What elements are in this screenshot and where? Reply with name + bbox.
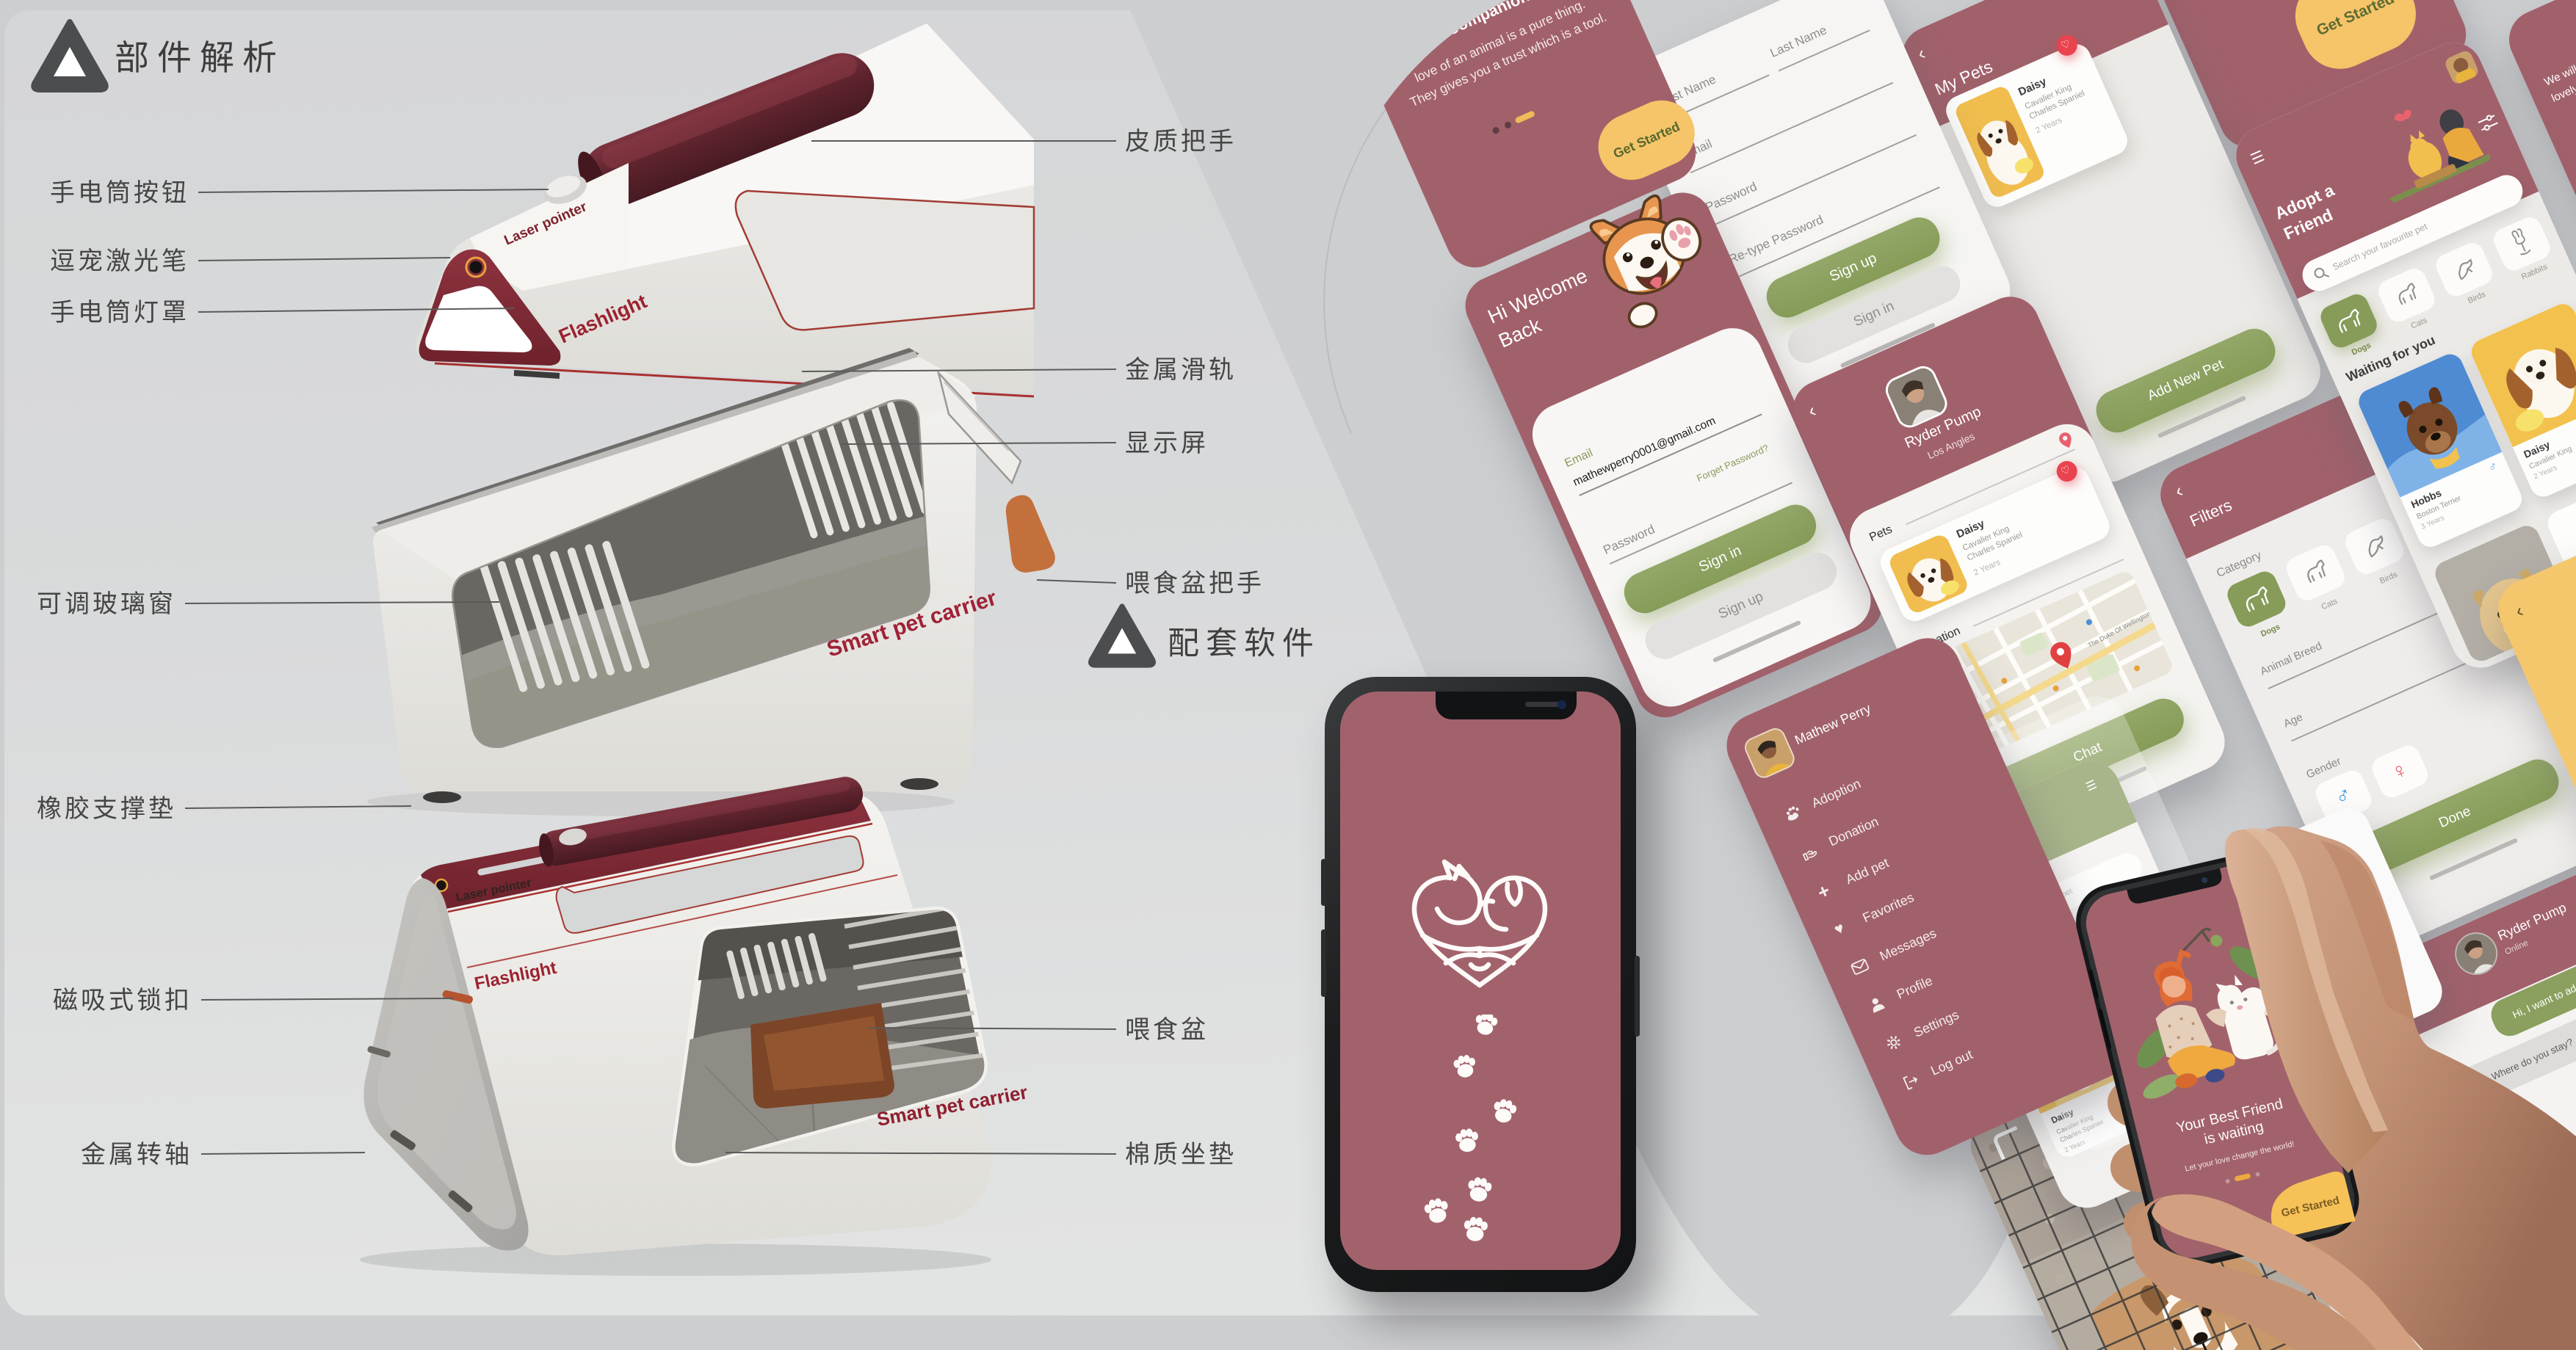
svg-text:可调玻璃窗: 可调玻璃窗: [37, 590, 176, 618]
svg-text:逗宠激光笔: 逗宠激光笔: [50, 247, 189, 275]
svg-text:皮质把手: 皮质把手: [1125, 128, 1237, 156]
svg-text:显示屏: 显示屏: [1125, 429, 1209, 457]
svg-text:手电筒灯罩: 手电筒灯罩: [50, 299, 189, 327]
svg-text:棉质坐垫: 棉质坐垫: [1125, 1141, 1237, 1169]
svg-text:金属转轴: 金属转轴: [81, 1141, 192, 1169]
svg-text:喂食盆把手: 喂食盆把手: [1125, 570, 1265, 598]
svg-text:橡胶支撑垫: 橡胶支撑垫: [37, 795, 176, 823]
svg-text:手电筒按钮: 手电筒按钮: [50, 179, 189, 207]
svg-text:磁吸式锁扣: 磁吸式锁扣: [53, 987, 192, 1015]
svg-text:金属滑轨: 金属滑轨: [1125, 356, 1237, 384]
svg-text:喂食盆: 喂食盆: [1125, 1016, 1209, 1044]
